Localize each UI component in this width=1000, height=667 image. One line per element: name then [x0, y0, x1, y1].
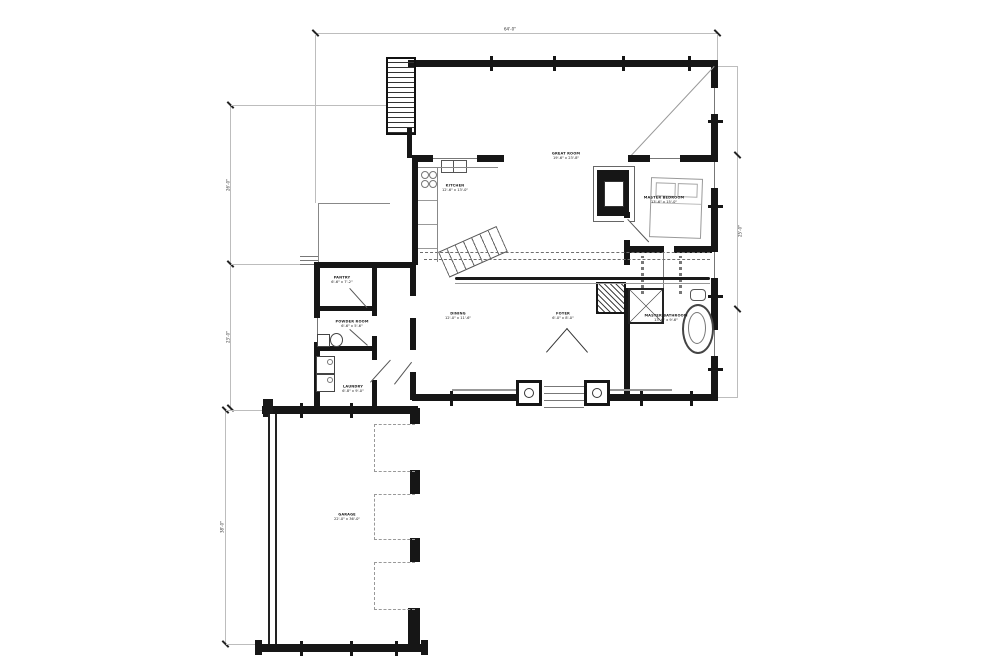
log-post-end	[592, 388, 602, 398]
cabinet-line	[418, 248, 437, 249]
cabinet-line	[418, 224, 437, 225]
step	[544, 400, 584, 401]
roof-line	[630, 66, 715, 157]
masonry-pier	[596, 282, 626, 314]
dimension-line-left-lower	[225, 410, 226, 645]
room-label-master-bedroom: MASTER BEDROOM 13'-6" x 15'-0"	[644, 196, 684, 205]
room-dims: 6'-0" x 8'-0"	[552, 316, 573, 321]
door-swing	[627, 219, 649, 242]
door-swing	[546, 328, 568, 353]
counter-line	[437, 167, 438, 262]
window-glass	[714, 162, 715, 188]
dimension-line-top	[315, 33, 718, 34]
window-glass	[714, 252, 715, 278]
porch-post	[584, 380, 610, 406]
extension-line	[315, 34, 316, 203]
log-joint	[708, 205, 723, 208]
log-joint	[708, 295, 723, 298]
log-joint	[300, 641, 303, 656]
porch-outline	[318, 203, 319, 263]
log-joint	[395, 641, 398, 656]
log-joint	[708, 120, 723, 123]
room-dims: 12'-6" x 13'-0"	[442, 188, 468, 193]
log-joint	[450, 391, 453, 406]
closet-rod	[679, 256, 682, 294]
beam	[455, 277, 710, 280]
step	[544, 393, 584, 394]
door-swing	[349, 329, 368, 346]
room-label-powder-room: POWDER ROOM 6'-6" x 5'-6"	[335, 320, 368, 329]
porch-post	[516, 380, 542, 406]
stone-chimney	[386, 57, 416, 135]
burner	[421, 180, 429, 188]
extension-line	[717, 34, 718, 62]
porch-edge	[610, 389, 672, 391]
wall-segment-bottom-left	[412, 394, 522, 401]
wall-segment-left-lower	[410, 262, 416, 400]
window-glass	[650, 158, 680, 159]
room-dims: 6'-8" x 9'-0"	[342, 389, 363, 394]
room-label-great-room: GREAT ROOM 19'-6" x 23'-8"	[552, 152, 580, 161]
room-dims: 6'-6" x 5'-6"	[335, 324, 368, 329]
burner	[421, 171, 429, 179]
room-dims: 19'-6" x 23'-8"	[552, 156, 580, 161]
window-glass	[433, 158, 477, 159]
room-dims: 13'-6" x 9'-6"	[644, 318, 687, 323]
room-label-foyer: FOYER 6'-0" x 8'-0"	[552, 312, 573, 321]
log-joint	[708, 368, 723, 371]
door-swing	[349, 288, 367, 308]
wall-segment-top	[408, 60, 718, 67]
toilet-bowl	[330, 333, 343, 347]
log-joint	[300, 403, 303, 418]
garage-bay-dashed	[374, 494, 415, 540]
log-joint	[622, 56, 625, 71]
log-joint	[350, 403, 353, 418]
firebox	[604, 181, 624, 207]
beam-dashed	[420, 252, 710, 253]
door-swing	[566, 328, 588, 353]
porch-edge	[452, 389, 516, 391]
wall-segment-garage-left	[268, 414, 277, 648]
porch-outline	[318, 203, 390, 204]
bathtub-inner	[688, 312, 706, 344]
beam-dashed	[424, 259, 710, 260]
corner-post	[408, 608, 420, 648]
log-joint	[690, 391, 693, 406]
dryer	[316, 374, 335, 392]
room-dims: 12'-0" x 11'-6"	[445, 316, 471, 321]
window-glass	[714, 88, 715, 114]
door-gap	[410, 296, 416, 318]
post	[410, 470, 420, 494]
beam-shadow	[455, 283, 710, 284]
dial	[327, 377, 333, 383]
room-label-master-bathroom: MASTER BATHROOM 13'-6" x 9'-6"	[644, 314, 687, 323]
toilet	[690, 289, 706, 301]
washer	[316, 356, 335, 374]
dimension-label-left-middle: 23'-0"	[226, 331, 231, 343]
step	[544, 386, 584, 387]
room-label-dining: DINING 12'-0" x 11'-6"	[445, 312, 471, 321]
wall-segment-wing-top	[316, 262, 416, 268]
room-label-garage: GARAGE 22'-0" x 36'-0"	[334, 513, 360, 522]
bathtub	[682, 304, 714, 354]
log-joint	[553, 56, 556, 71]
burner	[429, 171, 437, 179]
post	[410, 408, 420, 424]
window-glass	[714, 330, 715, 356]
wall-segment-garage-top	[262, 406, 418, 414]
counter-line	[418, 167, 498, 168]
bed	[649, 177, 703, 239]
extension-line	[231, 105, 388, 106]
post	[410, 538, 420, 562]
step	[544, 407, 584, 408]
log-joint	[688, 56, 691, 71]
dimension-label-top: 64'-0"	[504, 27, 516, 32]
step	[300, 256, 318, 257]
dimension-label-left-upper: 26'-0"	[226, 179, 231, 191]
log-post-end	[524, 388, 534, 398]
log-joint	[350, 641, 353, 656]
room-label-pantry: PANTRY 6'-6" x 7'-2"	[331, 276, 352, 285]
wall-segment-chimney-stub	[407, 128, 412, 158]
room-label-kitchen: KITCHEN 12'-6" x 13'-0"	[442, 184, 468, 193]
room-dims: 6'-6" x 7'-2"	[331, 280, 352, 285]
log-end	[421, 640, 428, 655]
garage-bay-dashed	[374, 424, 415, 472]
dimension-label-right: 25'-0"	[738, 225, 743, 237]
log-end	[255, 640, 262, 655]
log-joint	[640, 391, 643, 406]
room-dims: 13'-6" x 15'-0"	[644, 200, 684, 205]
door-gap	[372, 316, 377, 336]
dial	[327, 359, 333, 365]
step	[300, 260, 318, 261]
burner	[429, 180, 437, 188]
toilet-tank	[317, 334, 330, 347]
floor-plan-sheet: 64'-0" 26'-0" 23'-0" 38'-0" 25'-0"	[0, 0, 1000, 667]
room-dims: 22'-0" x 36'-0"	[334, 517, 360, 522]
room-label-laundry: LAUNDRY 6'-8" x 9'-0"	[342, 385, 363, 394]
cabinet-line	[418, 200, 437, 201]
dimension-label-left-lower: 38'-0"	[220, 521, 225, 533]
garage-bay-dashed	[374, 562, 415, 610]
log-joint	[490, 56, 493, 71]
